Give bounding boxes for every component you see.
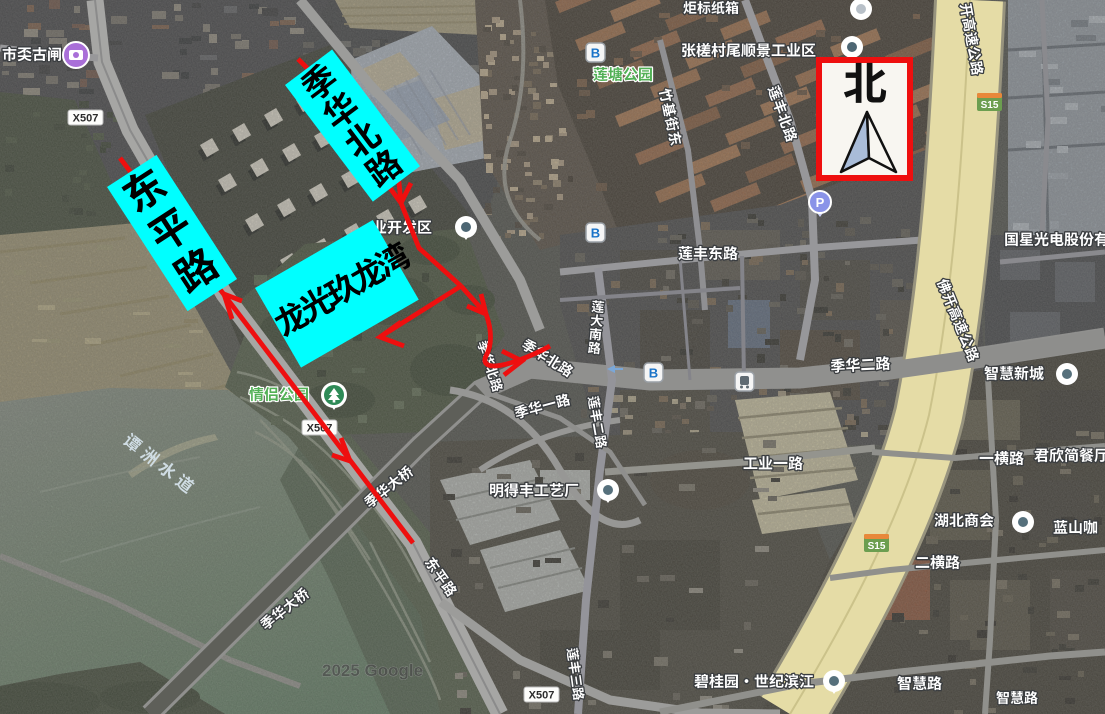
svg-text:S15: S15 (868, 541, 886, 552)
svg-text:S15: S15 (981, 100, 999, 111)
svg-text:B: B (591, 46, 600, 61)
svg-text:B: B (591, 226, 600, 241)
svg-text:2025 Google: 2025 Google (322, 661, 423, 680)
svg-text:B: B (649, 366, 658, 381)
svg-text:X507: X507 (529, 690, 555, 702)
svg-text:P: P (816, 195, 825, 210)
svg-text:X507: X507 (73, 113, 99, 125)
